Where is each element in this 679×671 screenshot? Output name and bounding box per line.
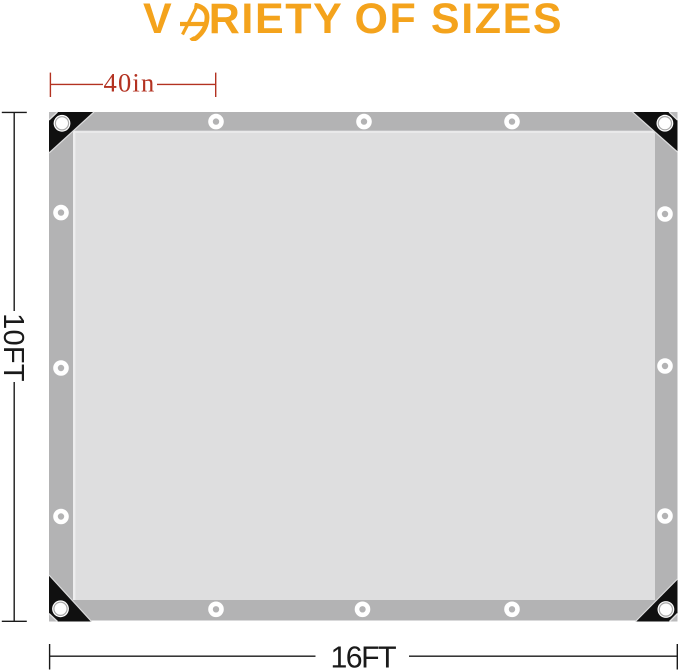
svg-text:10FT: 10FT bbox=[0, 313, 29, 382]
svg-text:16FT: 16FT bbox=[330, 642, 396, 671]
svg-text:40in: 40in bbox=[104, 68, 156, 98]
